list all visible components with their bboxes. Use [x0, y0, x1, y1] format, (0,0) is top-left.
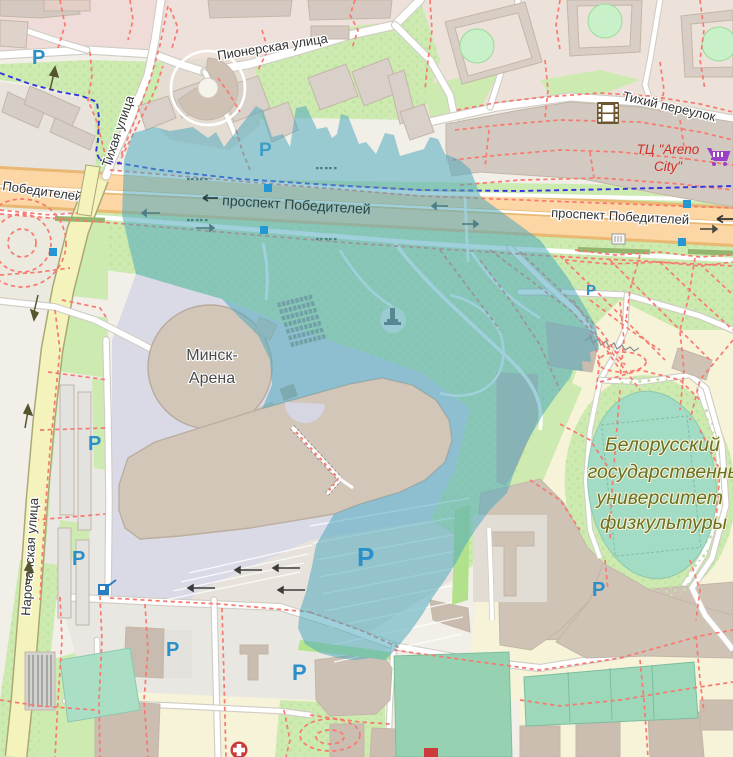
svg-text:P: P [88, 433, 101, 455]
svg-text:P: P [586, 282, 596, 299]
svg-text:City": City" [654, 159, 683, 174]
svg-text:P: P [357, 542, 374, 572]
svg-text:ТЦ "Areno: ТЦ "Areno [637, 142, 700, 157]
svg-text:P: P [592, 579, 605, 601]
svg-text:университет: университет [595, 487, 723, 509]
svg-text:P: P [32, 47, 45, 69]
svg-text:Белорусский: Белорусский [605, 434, 720, 456]
svg-text:Арена: Арена [189, 370, 235, 387]
svg-text:физкультуры: физкультуры [600, 512, 727, 534]
svg-text:P: P [292, 660, 307, 685]
svg-text:Минск-: Минск- [186, 347, 237, 364]
svg-text:P: P [166, 639, 179, 661]
svg-text:P: P [72, 548, 85, 570]
svg-text:государственны: государственны [588, 461, 733, 483]
